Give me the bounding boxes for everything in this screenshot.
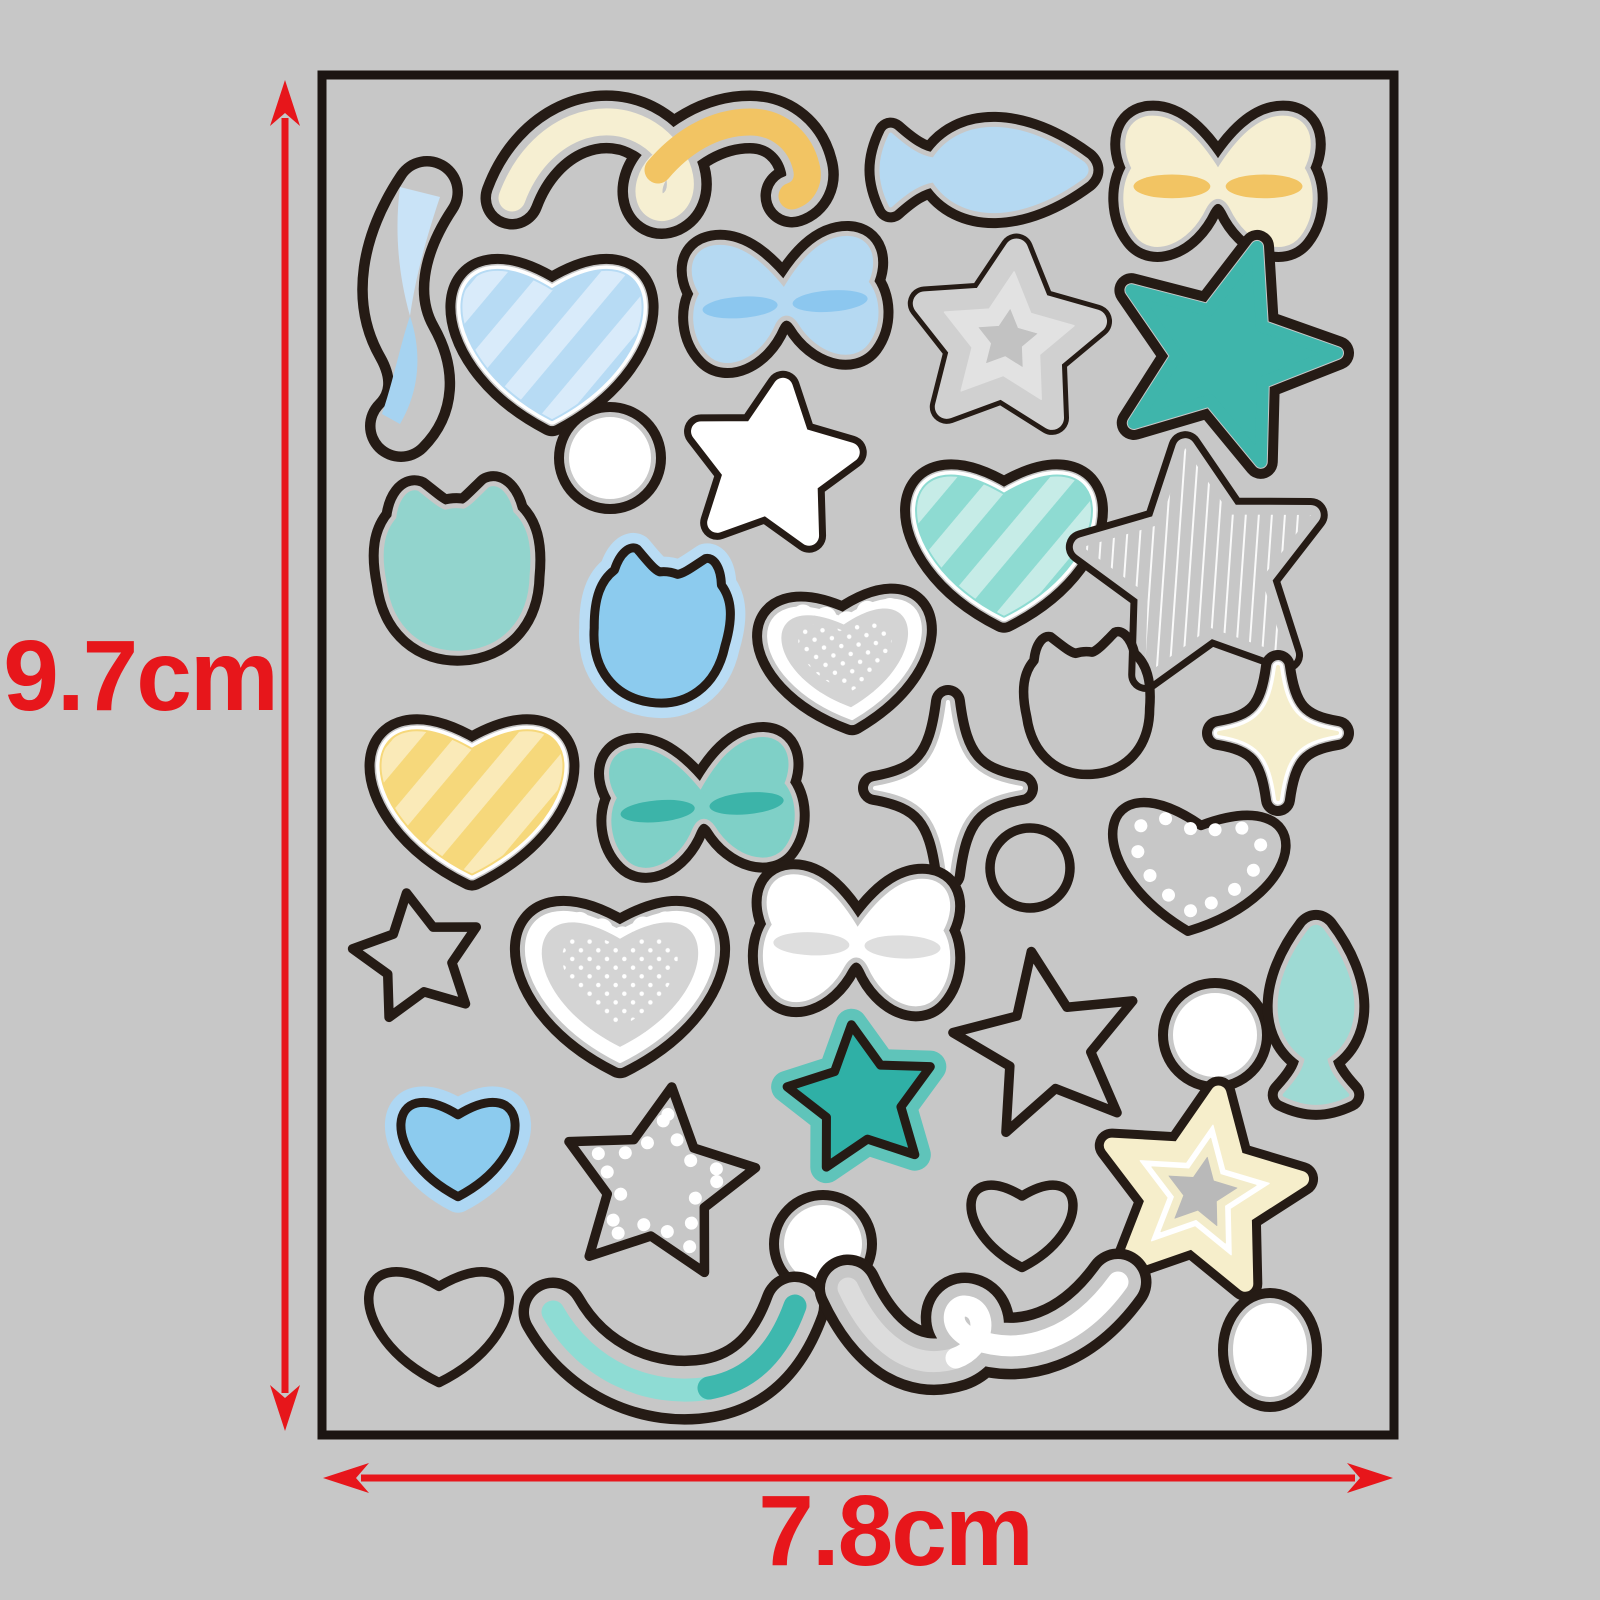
sticker-circle-white-2 bbox=[1175, 995, 1255, 1075]
sticker-cat-blue-halo bbox=[583, 544, 738, 712]
sticker-fish-teal bbox=[1280, 927, 1353, 1103]
width-dimension-label: 7.8cm bbox=[735, 1479, 1055, 1584]
figure-canvas: 9.7cm 7.8cm bbox=[0, 0, 1600, 1600]
height-dimension-label: 9.7cm bbox=[0, 624, 300, 729]
sticker-cat-teal bbox=[382, 486, 533, 652]
sticker-heart-halo-blue bbox=[401, 1102, 515, 1196]
sticker-oval-white bbox=[1235, 1305, 1305, 1395]
sticker-sheet-diagram bbox=[0, 0, 1600, 1600]
sticker-circle-white-1 bbox=[571, 419, 649, 497]
sticker-ribbon-white bbox=[848, 1282, 1118, 1362]
sticker-fish-blue bbox=[881, 129, 1086, 211]
